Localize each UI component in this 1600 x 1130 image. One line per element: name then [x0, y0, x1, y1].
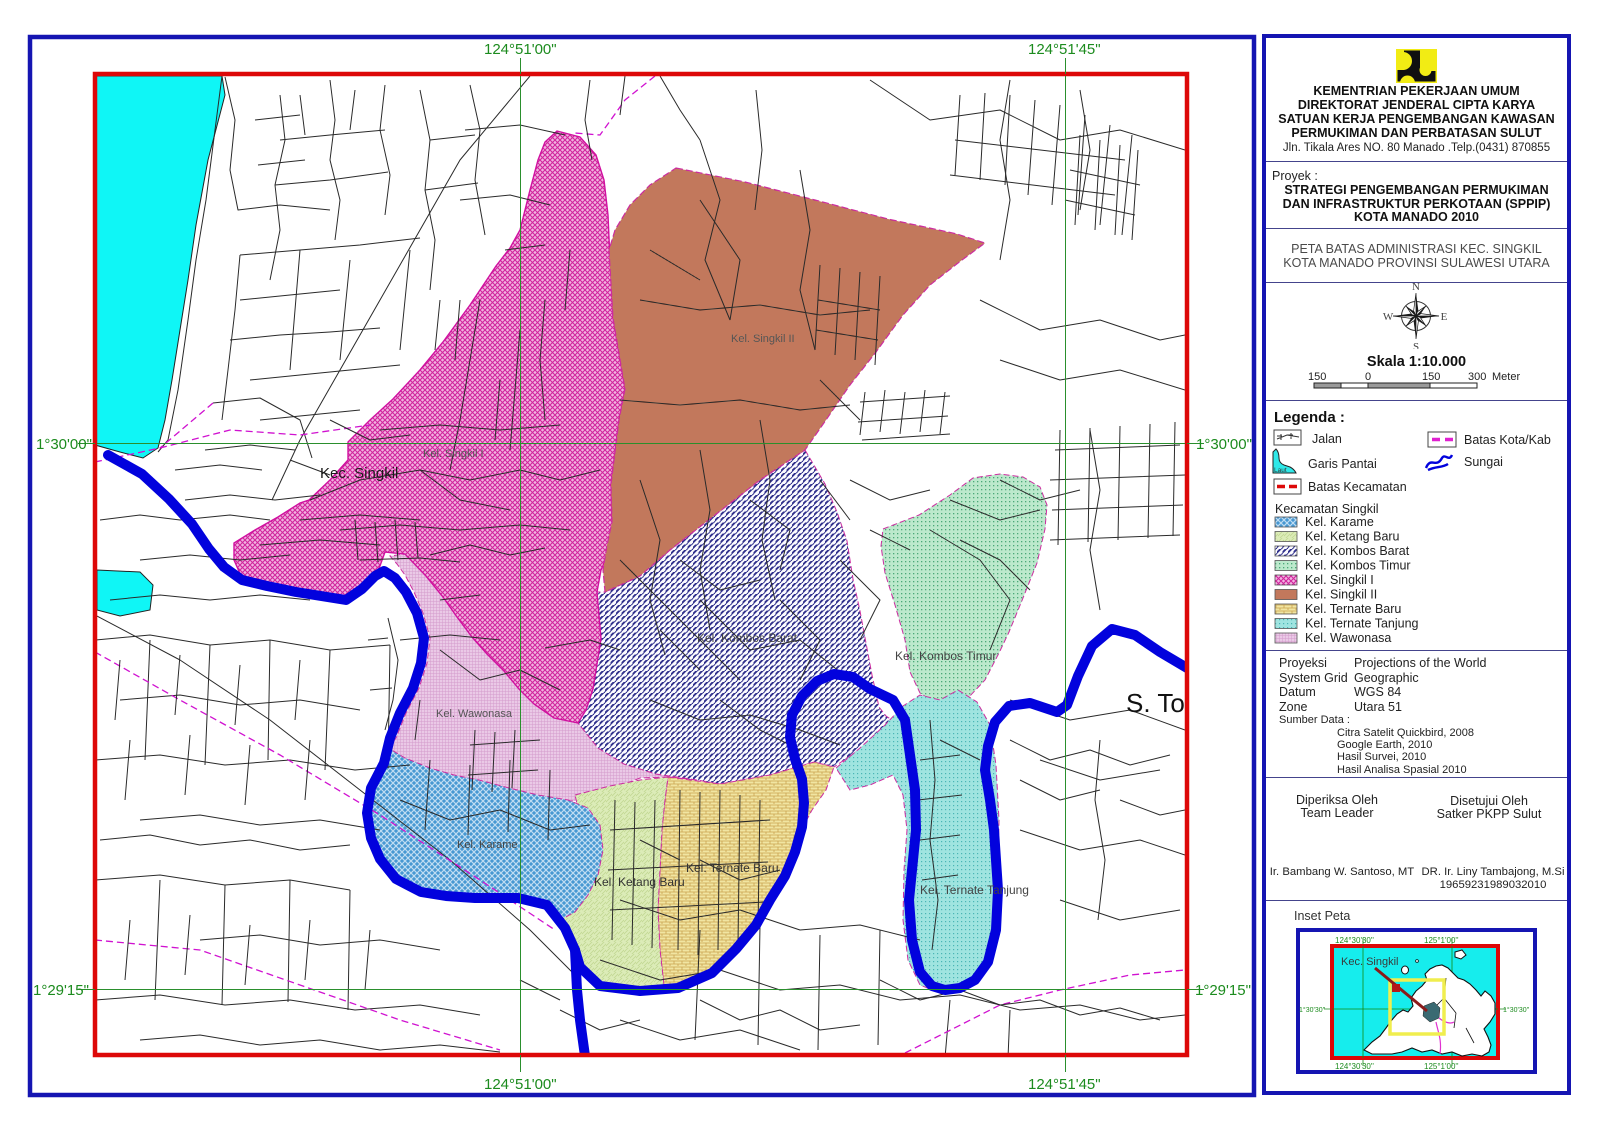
svg-text:1°30'30'': 1°30'30'' [1503, 1006, 1529, 1014]
svg-text:E: E [1441, 311, 1448, 323]
svg-text:Kec. Singkil: Kec. Singkil [320, 465, 398, 482]
svg-text:Kel. Ketang Baru: Kel. Ketang Baru [594, 875, 685, 889]
svg-text:Meter: Meter [1492, 371, 1520, 383]
svg-text:Kel. Singkil II: Kel. Singkil II [731, 333, 795, 345]
svg-text:Batas Kecamatan: Batas Kecamatan [1308, 480, 1407, 494]
svg-text:Sungai: Sungai [1464, 455, 1503, 469]
svg-text:150: 150 [1308, 371, 1326, 383]
svg-text:Kel. Ternate Baru: Kel. Ternate Baru [1305, 602, 1401, 616]
svg-text:1°29'15": 1°29'15" [1195, 982, 1251, 999]
svg-text:124°51'45": 124°51'45" [1028, 41, 1101, 58]
svg-text:W: W [1383, 311, 1394, 323]
svg-text:124°51'45": 124°51'45" [1028, 1076, 1101, 1093]
svg-text:300: 300 [1468, 371, 1486, 383]
svg-text:1°30'30'': 1°30'30'' [1299, 1006, 1325, 1014]
svg-text:Jalan: Jalan [1312, 432, 1342, 446]
svg-text:Kel. Wawonasa: Kel. Wawonasa [436, 708, 513, 720]
svg-text:124°30'30'': 124°30'30'' [1335, 936, 1374, 945]
svg-text:124°51'00": 124°51'00" [484, 41, 557, 58]
svg-text:Kel. Singkil I: Kel. Singkil I [423, 448, 484, 460]
svg-text:Kel. Ketang Baru: Kel. Ketang Baru [1305, 530, 1400, 544]
svg-text:Kecamatan Singkil: Kecamatan Singkil [1275, 502, 1379, 516]
svg-text:Kel. Wawonasa: Kel. Wawonasa [1305, 631, 1391, 645]
svg-text:0: 0 [1365, 371, 1371, 383]
svg-text:1°30'00": 1°30'00" [36, 436, 92, 453]
svg-text:Kel. Karame: Kel. Karame [457, 839, 518, 851]
svg-text:Garis Pantai: Garis Pantai [1308, 457, 1377, 471]
svg-text:124°51'00": 124°51'00" [484, 1076, 557, 1093]
svg-text:Laut: Laut [1274, 467, 1287, 474]
svg-text:Kel. Karame: Kel. Karame [1305, 515, 1374, 529]
svg-text:Kel. Ternate Tanjung: Kel. Ternate Tanjung [920, 883, 1029, 897]
svg-text:Kel. Kombos Timur: Kel. Kombos Timur [1305, 559, 1411, 573]
svg-text:Kec. Singkil: Kec. Singkil [1341, 956, 1398, 968]
svg-text:Kel. Ternate Tanjung: Kel. Ternate Tanjung [1305, 617, 1419, 631]
svg-text:125°1'00'': 125°1'00'' [1424, 1062, 1459, 1071]
svg-text:124°30'30'': 124°30'30'' [1335, 1062, 1374, 1071]
svg-text:Kel. Singkil I: Kel. Singkil I [1305, 573, 1374, 587]
svg-text:S: S [1413, 341, 1419, 349]
svg-text:1°30'00": 1°30'00" [1196, 436, 1252, 453]
svg-text:Kel. Kombos Timur: Kel. Kombos Timur [895, 649, 996, 663]
svg-text:Batas Kota/Kab: Batas Kota/Kab [1464, 433, 1551, 447]
svg-text:Kel. Kombos Barat: Kel. Kombos Barat [697, 631, 798, 645]
svg-text:S. To: S. To [1126, 688, 1185, 718]
svg-text:1°29'15": 1°29'15" [33, 982, 89, 999]
svg-text:N: N [1412, 281, 1420, 293]
svg-text:125°1'00'': 125°1'00'' [1424, 936, 1459, 945]
svg-text:150: 150 [1422, 371, 1440, 383]
svg-text:Kel. Ternate Baru: Kel. Ternate Baru [686, 861, 779, 875]
svg-text:Kel. Kombos Barat: Kel. Kombos Barat [1305, 544, 1410, 558]
svg-text:Legenda :: Legenda : [1274, 409, 1345, 426]
svg-text:Kel. Singkil II: Kel. Singkil II [1305, 588, 1377, 602]
